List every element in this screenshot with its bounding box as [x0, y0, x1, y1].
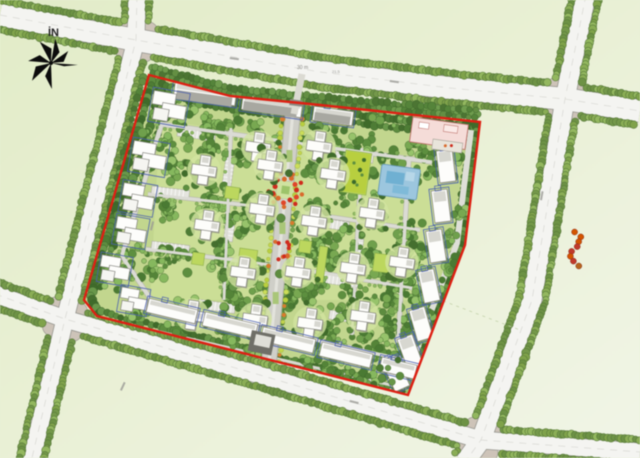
- svg-text:İN: İN: [48, 26, 59, 39]
- svg-text:21.5: 21.5: [332, 69, 341, 74]
- svg-text:30 m: 30 m: [297, 65, 308, 71]
